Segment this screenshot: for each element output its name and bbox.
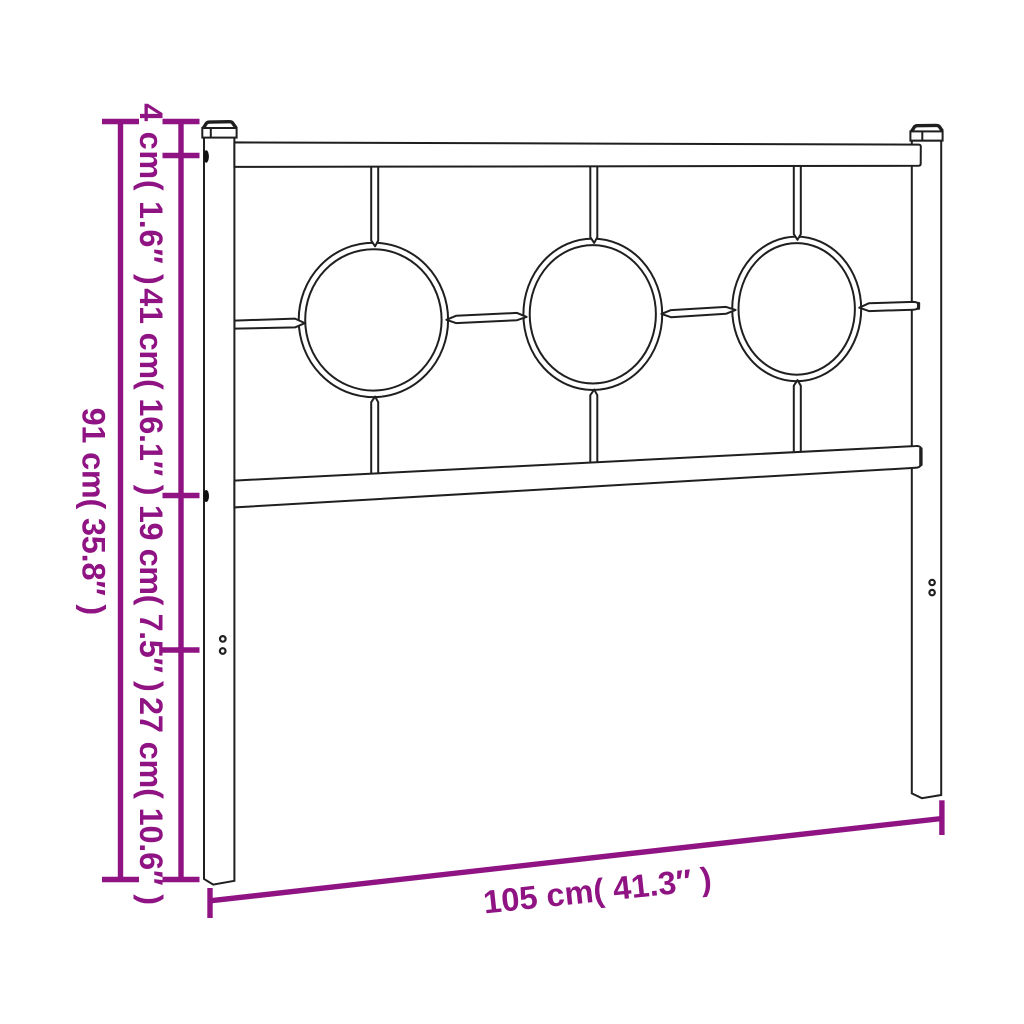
svg-text:27 cm( 10.6″ ): 27 cm( 10.6″ ) <box>133 697 169 905</box>
svg-text:4 cm( 1.6″ ): 4 cm( 1.6″ ) <box>133 103 169 285</box>
svg-text:41 cm( 16.1″ ): 41 cm( 16.1″ ) <box>133 288 169 495</box>
svg-text:19 cm( 7.5″ ): 19 cm( 7.5″ ) <box>133 505 169 692</box>
svg-text:91 cm( 35.8″ ): 91 cm( 35.8″ ) <box>75 408 111 615</box>
